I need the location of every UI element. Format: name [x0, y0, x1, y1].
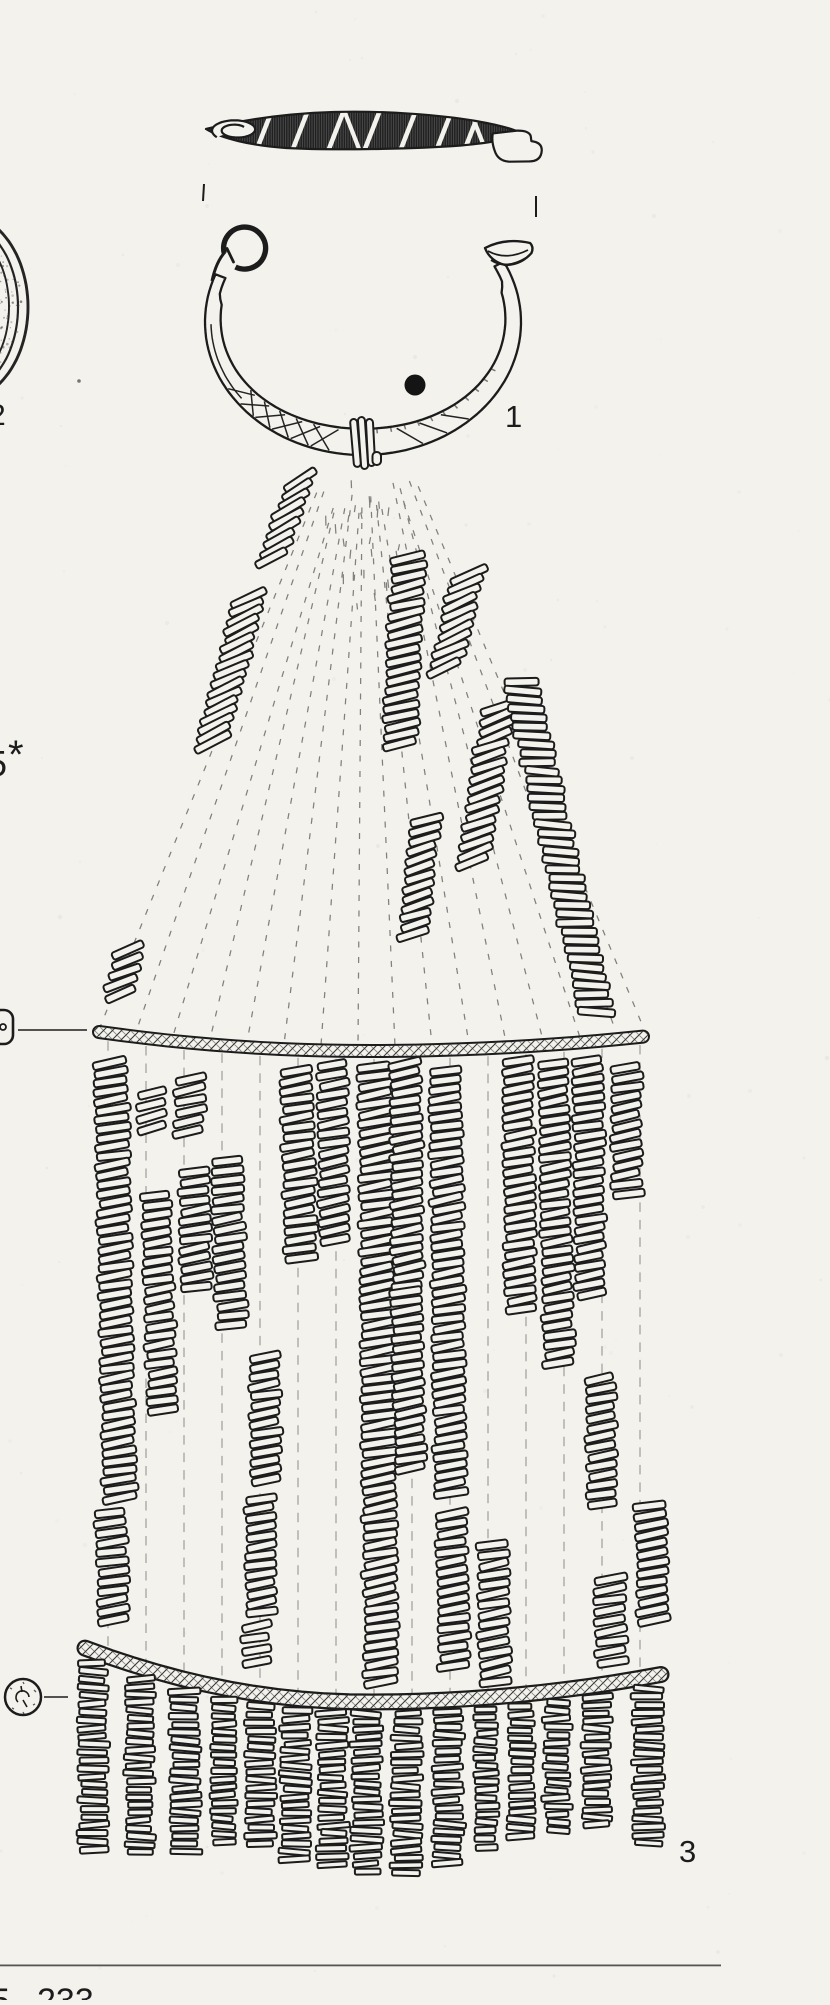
svg-text:2: 2 — [0, 399, 6, 432]
svg-text:*: * — [8, 733, 24, 777]
svg-text:3: 3 — [679, 1834, 696, 1869]
svg-text:5: 5 — [0, 1982, 10, 2000]
svg-text:1: 1 — [505, 399, 522, 434]
svg-text:5: 5 — [0, 743, 7, 784]
svg-text:233: 233 — [37, 1982, 94, 2000]
